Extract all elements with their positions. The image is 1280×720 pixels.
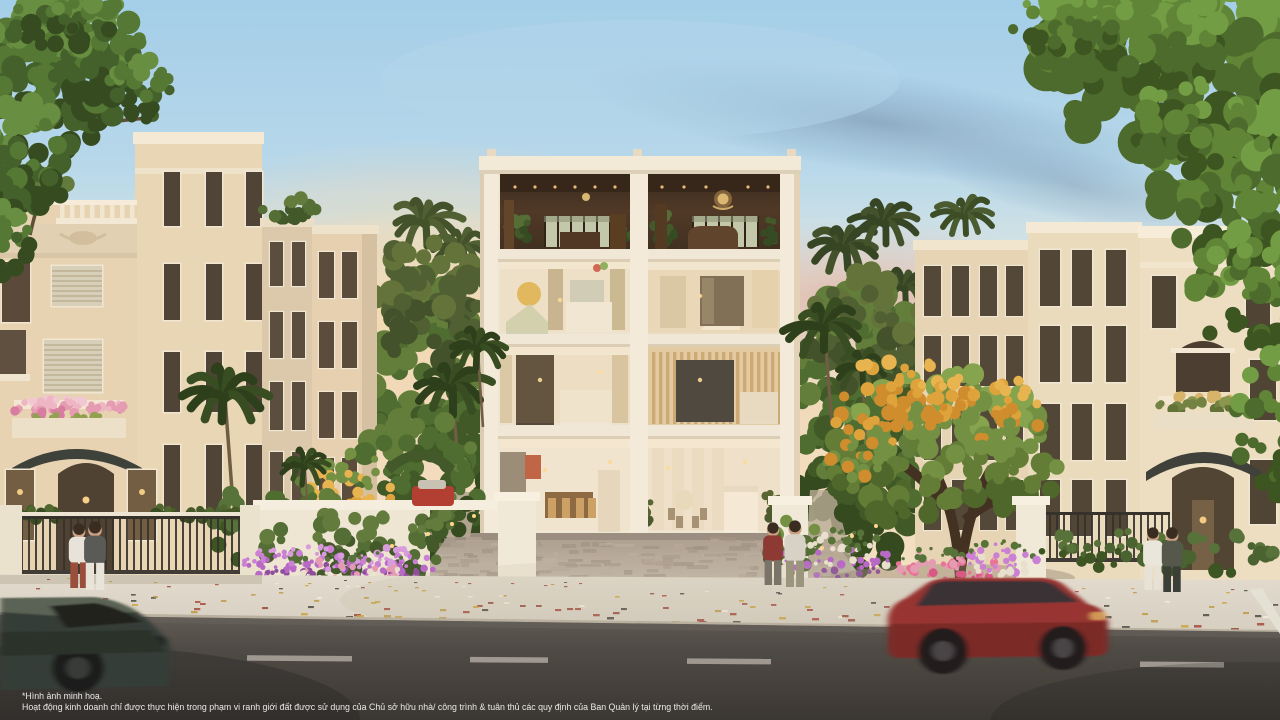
svg-text:Hoạt động kinh doanh chỉ được: Hoạt động kinh doanh chỉ được thực hiện … — [22, 702, 713, 712]
svg-text:*Hình ảnh minh hoạ.: *Hình ảnh minh hoạ. — [22, 691, 102, 701]
